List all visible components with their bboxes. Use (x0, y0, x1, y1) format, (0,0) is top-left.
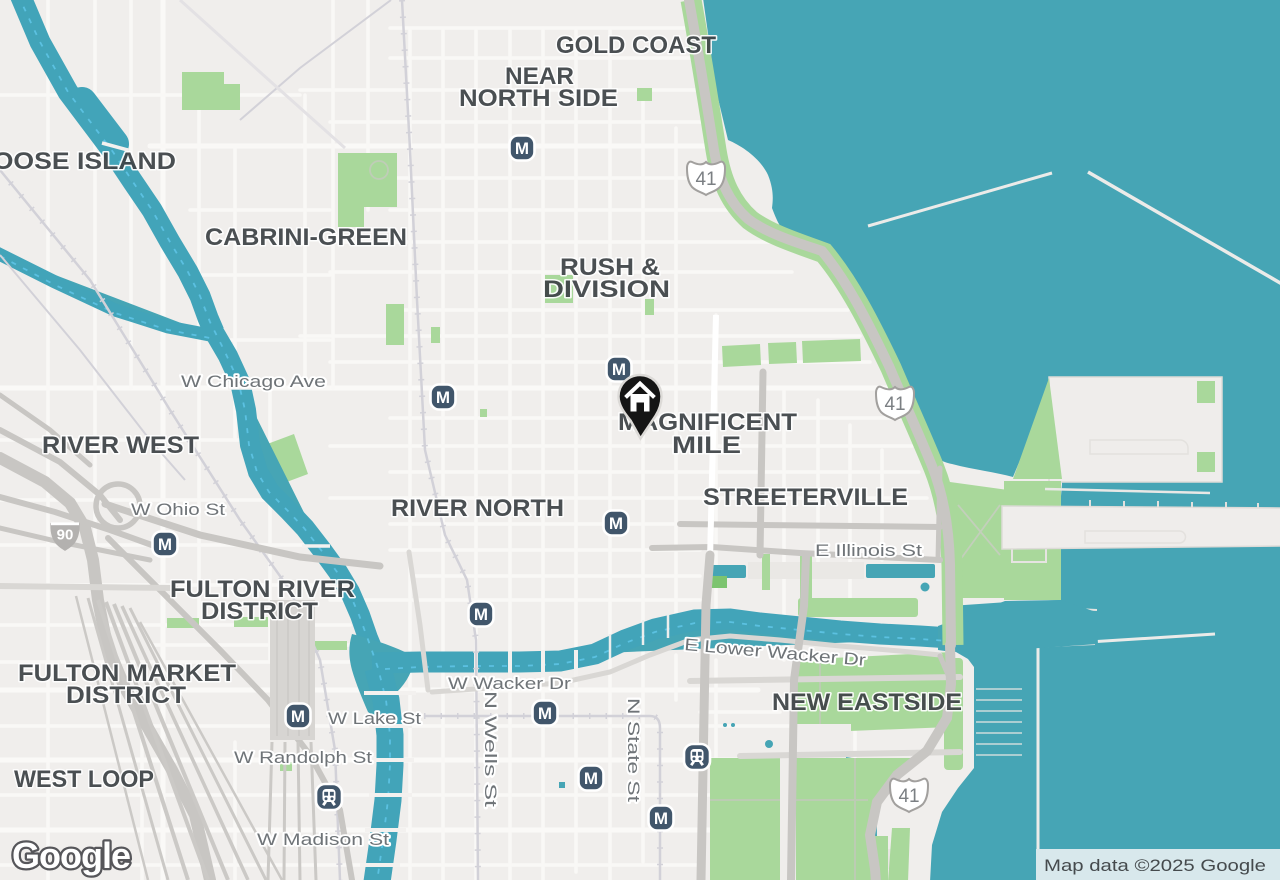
svg-text:DISTRICT: DISTRICT (201, 598, 318, 625)
svg-text:W Lake St: W Lake St (328, 709, 421, 728)
svg-text:DISTRICT: DISTRICT (66, 682, 186, 709)
svg-text:NORTH SIDE: NORTH SIDE (459, 85, 618, 112)
svg-text:STREETERVILLE: STREETERVILLE (703, 484, 908, 511)
svg-text:CABRINI-GREEN: CABRINI-GREEN (205, 224, 407, 251)
svg-text:GOOSE ISLAND: GOOSE ISLAND (0, 148, 176, 175)
svg-text:Google: Google (12, 835, 130, 876)
svg-text:RIVER WEST: RIVER WEST (42, 432, 199, 459)
svg-text:GOLD COAST: GOLD COAST (556, 32, 716, 59)
svg-text:W Ohio St: W Ohio St (131, 500, 225, 519)
svg-text:W Chicago Ave: W Chicago Ave (181, 372, 326, 391)
svg-text:NEW EASTSIDE: NEW EASTSIDE (772, 689, 962, 716)
svg-text:W Wacker Dr: W Wacker Dr (448, 674, 571, 693)
svg-text:E Illinois St: E Illinois St (815, 541, 922, 560)
svg-text:RIVER NORTH: RIVER NORTH (391, 495, 564, 522)
svg-text:Map data ©2025 Google: Map data ©2025 Google (1044, 856, 1266, 875)
svg-text:MILE: MILE (672, 432, 741, 459)
svg-text:N Wells St: N Wells St (481, 691, 500, 807)
svg-text:W Randolph St: W Randolph St (234, 748, 372, 767)
svg-text:DIVISION: DIVISION (543, 276, 670, 303)
svg-text:WEST LOOP: WEST LOOP (14, 766, 154, 793)
svg-text:N State St: N State St (624, 698, 643, 802)
svg-text:W Madison St: W Madison St (257, 830, 389, 849)
